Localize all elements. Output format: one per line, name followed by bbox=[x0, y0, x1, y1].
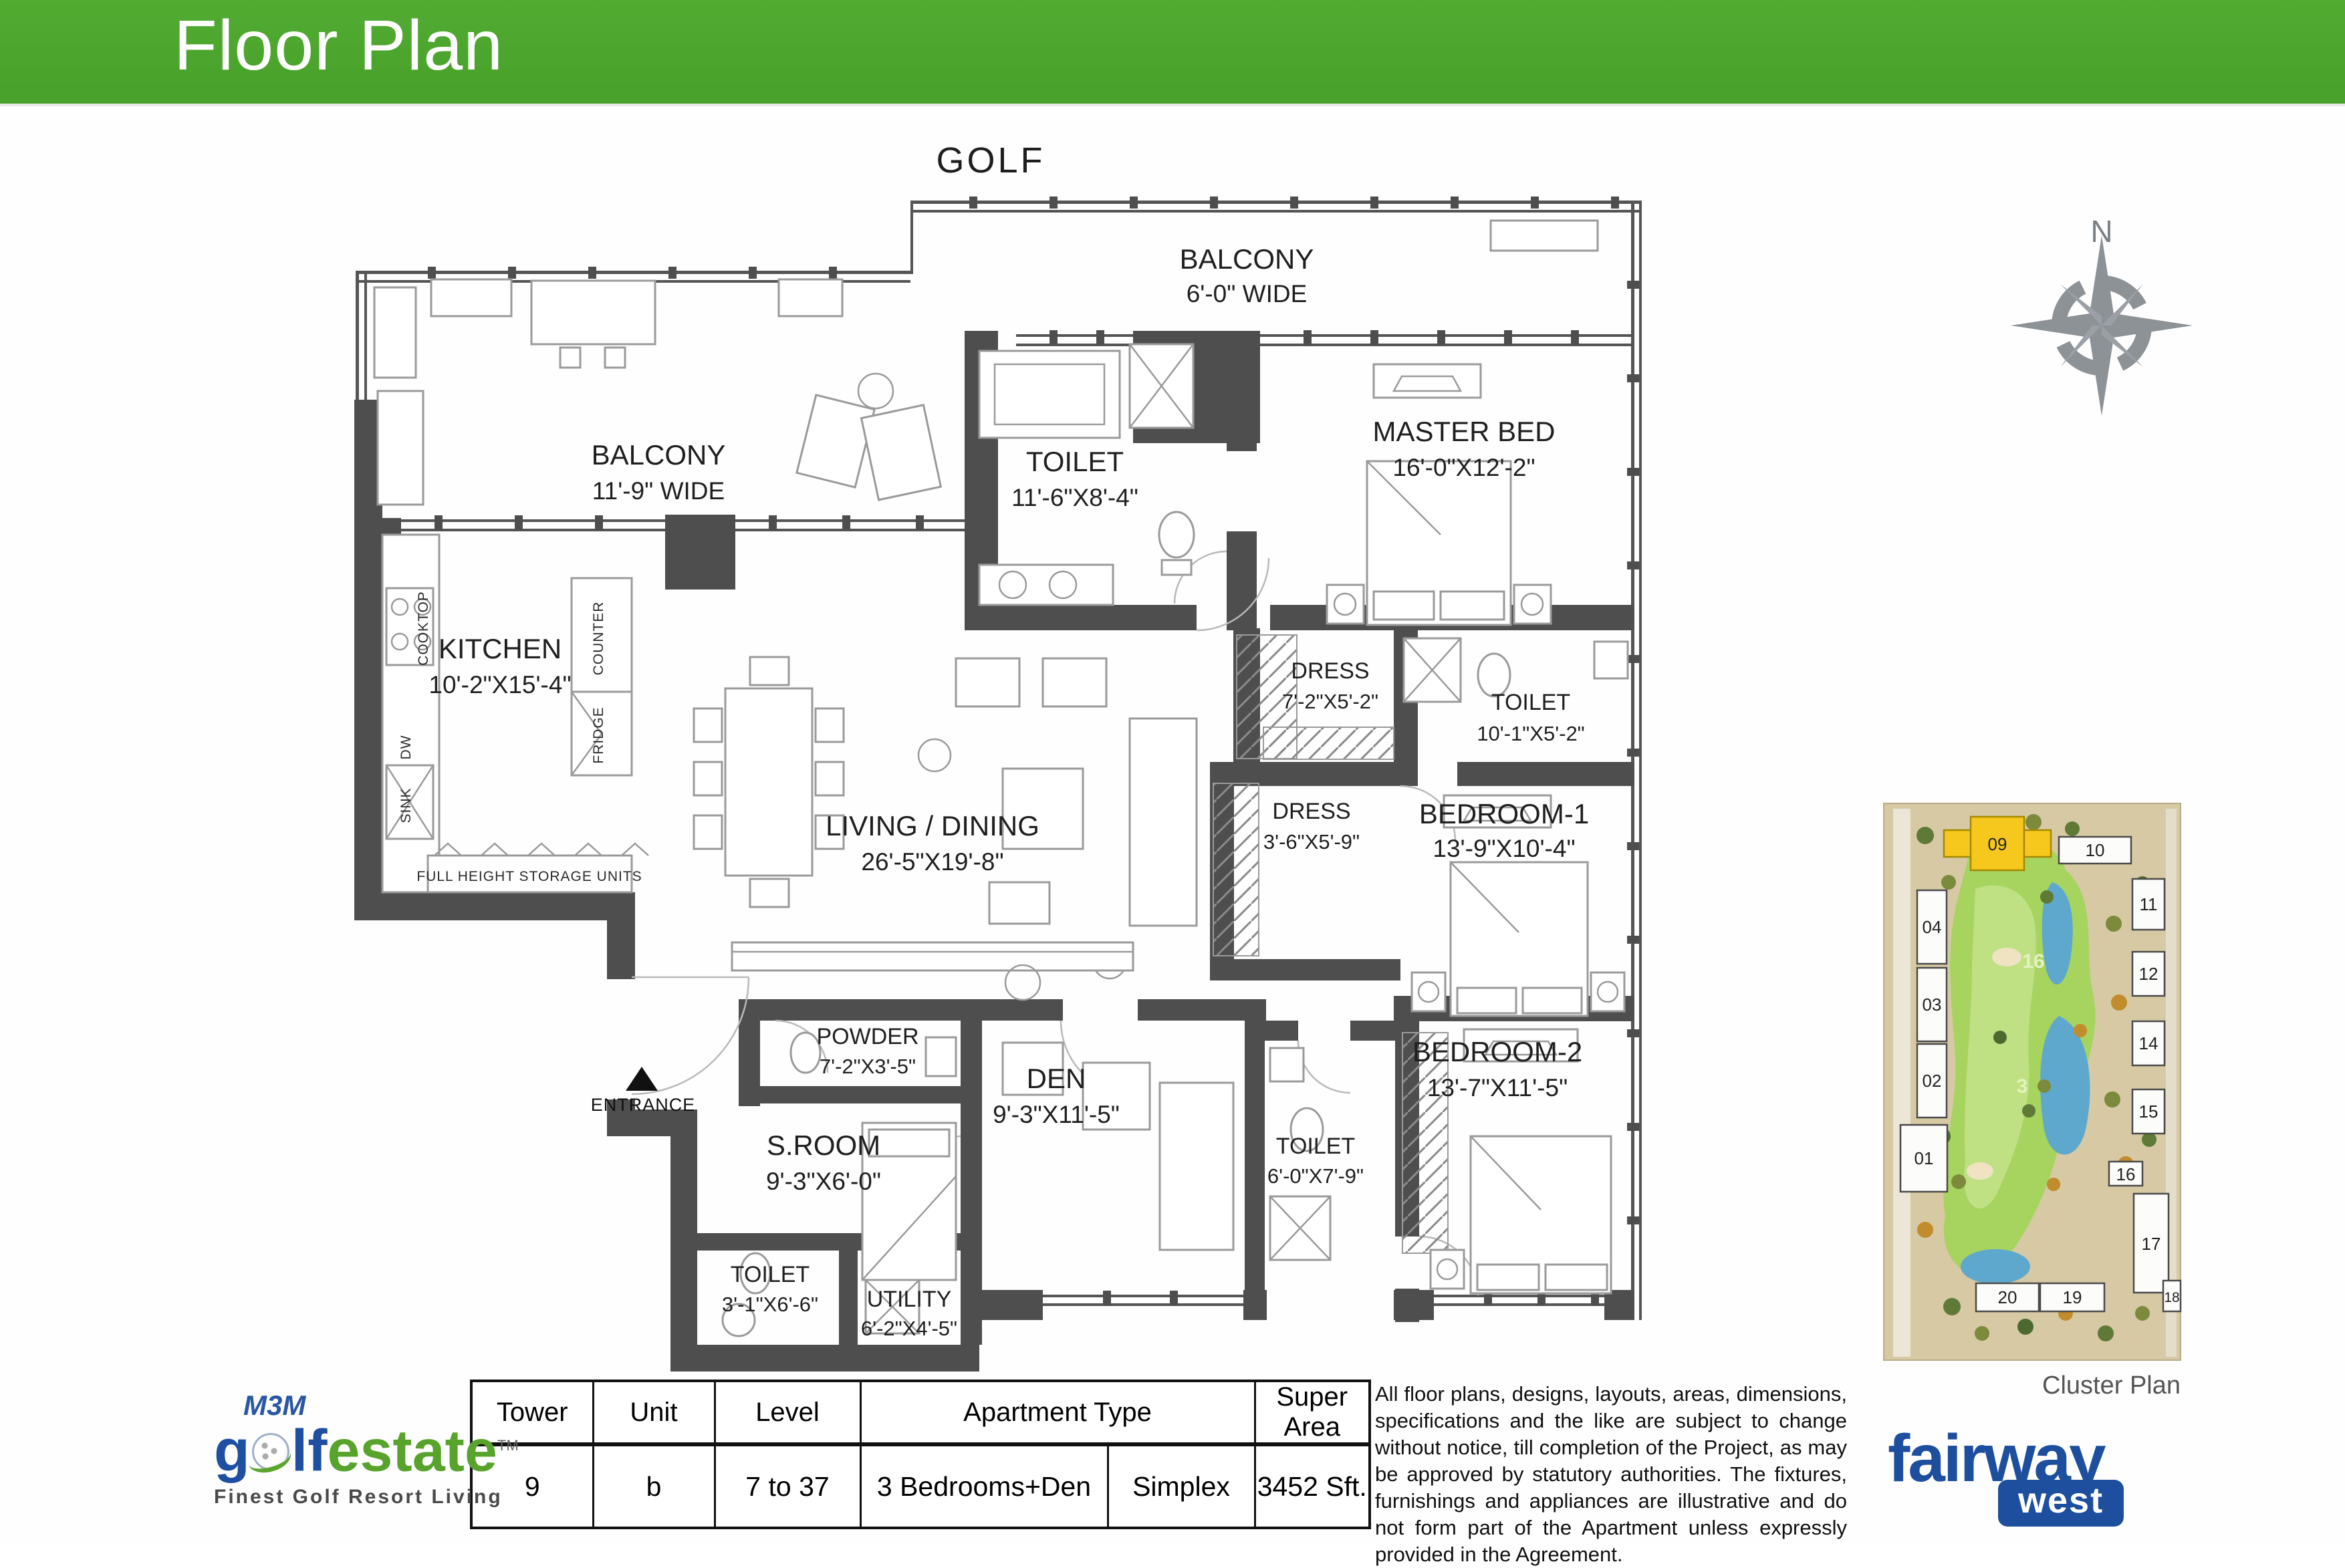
building-03-label: 03 bbox=[1923, 995, 1942, 1015]
room-sroom-dims: 9'-3"X6'-0" bbox=[766, 1168, 881, 1195]
room-master-bed-dims: 16'-0"X12'-2" bbox=[1392, 454, 1535, 481]
golf-hole-16-label: 16 bbox=[2022, 950, 2044, 972]
disclaimer-text: All floor plans, designs, layouts, areas… bbox=[1375, 1381, 1847, 1568]
super-area-value: 3452 Sft. bbox=[1255, 1444, 1370, 1528]
room-den: DEN bbox=[1027, 1063, 1086, 1094]
dw-label: DW bbox=[398, 735, 414, 760]
building-09-label: 09 bbox=[1988, 834, 2007, 854]
room-dress-2-dims: 3'-6"X5'-9" bbox=[1263, 830, 1360, 854]
golfestate-estate: estate bbox=[328, 1417, 497, 1483]
cooktop-label: COOKTOP bbox=[416, 591, 431, 666]
col-level: Level bbox=[715, 1381, 860, 1444]
fridge-label: FRIDGE bbox=[591, 706, 606, 763]
room-sroom: S.ROOM bbox=[767, 1130, 880, 1161]
building-17-label: 17 bbox=[2142, 1234, 2161, 1254]
compass-rose-icon: N bbox=[2011, 214, 2193, 416]
room-bedroom-1: BEDROOM-1 bbox=[1419, 798, 1589, 829]
room-powder: POWDER bbox=[817, 1024, 919, 1049]
unit-value: b bbox=[593, 1444, 715, 1528]
col-unit: Unit bbox=[593, 1381, 715, 1444]
room-den-dims: 9'-3"X11'-5" bbox=[993, 1101, 1120, 1128]
fairway-west-logo: fairway west bbox=[1888, 1428, 2155, 1527]
entrance-marker: ENTRANCE bbox=[591, 1067, 696, 1115]
room-living-dining: LIVING / DINING bbox=[826, 810, 1039, 841]
room-utility-dims: 6'-2"X4'-5" bbox=[861, 1317, 957, 1340]
cluster-plan-caption: Cluster Plan bbox=[2042, 1371, 2181, 1400]
room-toilet-3: TOILET bbox=[731, 1262, 810, 1287]
m3m-tagline: Finest Golf Resort Living bbox=[214, 1486, 455, 1509]
entrance-label: ENTRANCE bbox=[591, 1095, 696, 1115]
room-toilet-2: TOILET bbox=[1491, 690, 1570, 715]
room-dress-1: DRESS bbox=[1291, 658, 1369, 684]
golf-side-label: GOLF bbox=[936, 140, 1045, 180]
building-20-label: 20 bbox=[1998, 1287, 2017, 1307]
room-bedroom-1-dims: 13'-9"X10'-4" bbox=[1433, 835, 1575, 862]
room-balcony-left: BALCONY bbox=[592, 439, 726, 471]
sink-label: SINK bbox=[398, 787, 414, 823]
room-powder-dims: 7'-2"X3'-5" bbox=[820, 1055, 916, 1078]
building-02-label: 02 bbox=[1923, 1071, 1942, 1091]
building-16-label: 16 bbox=[2116, 1164, 2136, 1184]
room-utility: UTILITY bbox=[867, 1287, 952, 1312]
kitchen-fittings: COOKTOP DW SINK COUNTER FRIDGE FULL HEIG… bbox=[382, 535, 648, 892]
apartment-type-value: 3 Bedrooms+Den bbox=[860, 1444, 1108, 1528]
layout-value: Simplex bbox=[1108, 1444, 1255, 1528]
golf-hole-3-label: 3 bbox=[2017, 1075, 2028, 1097]
building-04-label: 04 bbox=[1923, 917, 1942, 937]
building-18-label: 18 bbox=[2164, 1290, 2179, 1305]
m3m-wordmark: M3M bbox=[243, 1394, 455, 1417]
room-bedroom-2-dims: 13'-7"X11'-5" bbox=[1427, 1074, 1568, 1101]
storage-units-label: FULL HEIGHT STORAGE UNITS bbox=[416, 869, 642, 884]
room-bedroom-2: BEDROOM-2 bbox=[1412, 1036, 1582, 1067]
col-apartment-type: Apartment Type bbox=[860, 1381, 1255, 1444]
room-master-bed: MASTER BED bbox=[1372, 416, 1555, 447]
counter-label: COUNTER bbox=[591, 602, 606, 676]
building-01-label: 01 bbox=[1915, 1148, 1934, 1168]
building-15-label: 15 bbox=[2139, 1101, 2158, 1122]
golfestate-g: g bbox=[214, 1417, 250, 1483]
golfestate-lf: lf bbox=[291, 1417, 328, 1483]
golf-ball-icon bbox=[252, 1433, 289, 1470]
spec-header-row: Tower Unit Level Apartment Type Super Ar… bbox=[471, 1381, 1370, 1444]
room-kitchen: KITCHEN bbox=[439, 633, 562, 664]
room-dress-2: DRESS bbox=[1272, 799, 1350, 824]
building-19-label: 19 bbox=[2063, 1287, 2082, 1307]
furniture bbox=[374, 221, 1628, 1336]
cluster-plan-map: 09 10 11 12 14 15 16 17 18 19 20 04 03 0… bbox=[1884, 803, 2181, 1400]
building-11-label: 11 bbox=[2140, 894, 2158, 914]
building-14-label: 14 bbox=[2139, 1033, 2158, 1053]
room-toilet-4: TOILET bbox=[1276, 1134, 1355, 1159]
golfestate-wordmark: glfestateTM bbox=[214, 1417, 455, 1479]
room-living-dining-dims: 26'-5"X19'-8" bbox=[861, 848, 1003, 876]
room-toilet-master-dims: 11'-6"X8'-4" bbox=[1011, 484, 1138, 511]
room-toilet-master: TOILET bbox=[1026, 446, 1124, 477]
room-balcony-top: BALCONY bbox=[1180, 243, 1314, 275]
room-kitchen-dims: 10'-2"X15'-4" bbox=[428, 671, 571, 698]
col-super-area: Super Area bbox=[1255, 1381, 1370, 1444]
spec-value-row: 9 b 7 to 37 3 Bedrooms+Den Simplex 3452 … bbox=[471, 1444, 1370, 1528]
building-12-label: 12 bbox=[2139, 964, 2158, 984]
room-toilet-2-dims: 10'-1"X5'-2" bbox=[1477, 722, 1584, 745]
building-10-label: 10 bbox=[2086, 840, 2105, 860]
unit-spec-table: Tower Unit Level Apartment Type Super Ar… bbox=[470, 1380, 1371, 1529]
floor-plan-canvas: GOLF bbox=[0, 0, 2345, 1545]
room-balcony-left-dims: 11'-9" WIDE bbox=[592, 477, 725, 505]
west-badge: west bbox=[1998, 1480, 2124, 1527]
trademark-symbol: TM bbox=[497, 1437, 519, 1454]
room-dress-1-dims: 7'-2"X5'-2" bbox=[1282, 690, 1378, 713]
room-balcony-top-dims: 6'-0" WIDE bbox=[1187, 280, 1308, 307]
room-toilet-3-dims: 3'-1"X6'-6" bbox=[722, 1293, 818, 1316]
room-toilet-4-dims: 6'-0"X7'-9" bbox=[1267, 1164, 1364, 1188]
level-value: 7 to 37 bbox=[715, 1444, 860, 1528]
m3m-golfestate-logo: M3M glfestateTM Finest Golf Resort Livin… bbox=[214, 1394, 455, 1509]
brochure-page: Floor Plan GOLF bbox=[0, 0, 2345, 1545]
